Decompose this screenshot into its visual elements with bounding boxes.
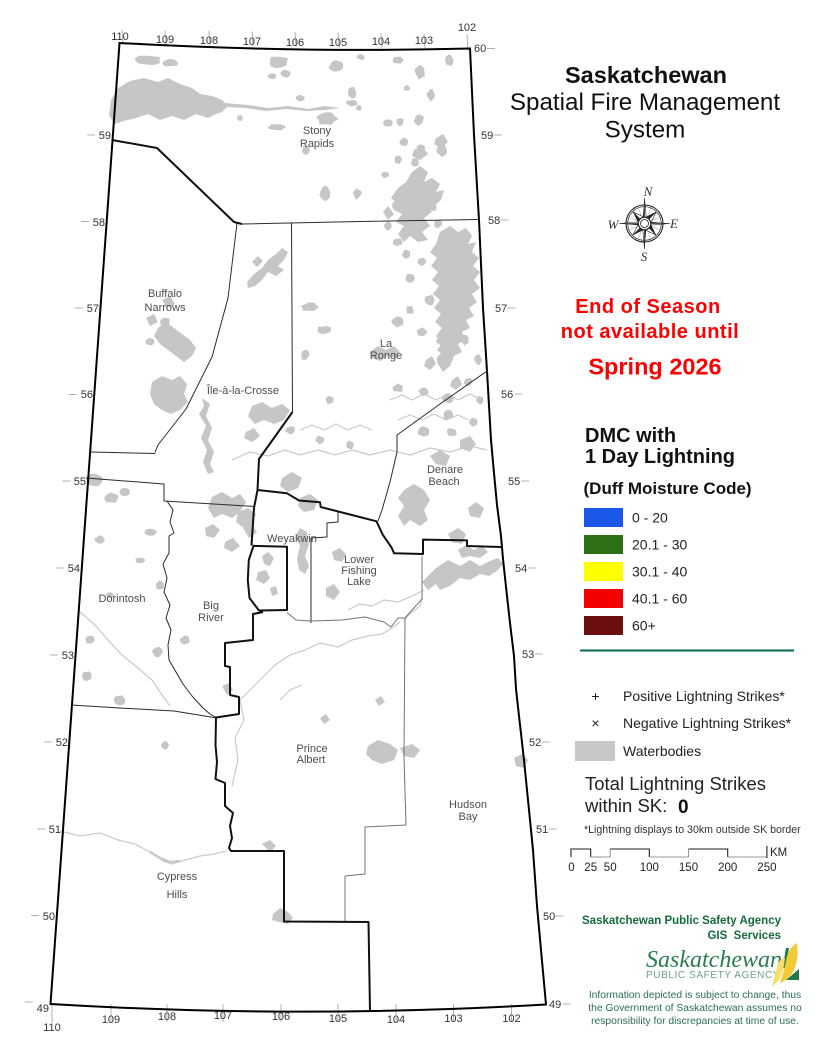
- svg-text:0 - 20: 0 - 20: [632, 510, 668, 526]
- svg-text:55: 55: [508, 476, 520, 488]
- svg-text:108: 108: [200, 35, 218, 47]
- svg-text:53: 53: [522, 649, 534, 661]
- svg-text:30.1 - 40: 30.1 - 40: [632, 564, 687, 580]
- svg-text:51: 51: [49, 824, 61, 836]
- svg-text:110: 110: [43, 1022, 61, 1034]
- svg-text:51: 51: [536, 824, 548, 836]
- svg-text:107: 107: [214, 1010, 232, 1022]
- svg-text:59: 59: [99, 130, 111, 142]
- svg-text:not available until: not available until: [561, 321, 739, 343]
- svg-text:×: ×: [591, 715, 599, 731]
- svg-text:59: 59: [481, 130, 493, 142]
- svg-text:60+: 60+: [632, 618, 656, 634]
- svg-text:Waterbodies: Waterbodies: [623, 743, 701, 759]
- svg-text:Information depicted is subjec: Information depicted is subject to chang…: [589, 990, 801, 1001]
- svg-text:Beach: Beach: [428, 476, 459, 488]
- svg-text:Stony: Stony: [303, 125, 332, 137]
- svg-text:(Duff Moisture Code): (Duff Moisture Code): [584, 479, 752, 498]
- svg-text:Hudson: Hudson: [449, 799, 487, 811]
- svg-text:1 Day Lightning: 1 Day Lightning: [585, 446, 735, 468]
- svg-text:50: 50: [543, 911, 555, 923]
- svg-text:56: 56: [501, 389, 513, 401]
- svg-text:Positive Lightning Strikes*: Positive Lightning Strikes*: [623, 688, 785, 704]
- svg-text:+: +: [591, 688, 599, 704]
- svg-text:Saskatchewan Public Safety Age: Saskatchewan Public Safety Agency: [582, 915, 782, 927]
- svg-text:DMC with: DMC with: [585, 425, 676, 447]
- svg-text:Narrows: Narrows: [145, 302, 186, 314]
- svg-text:La: La: [380, 338, 393, 350]
- svg-text:54: 54: [68, 563, 80, 575]
- svg-text:105: 105: [329, 1013, 347, 1025]
- svg-text:S: S: [641, 249, 648, 264]
- svg-text:57: 57: [87, 303, 99, 315]
- svg-text:107: 107: [243, 36, 261, 48]
- svg-text:Ronge: Ronge: [370, 350, 402, 362]
- svg-text:50: 50: [604, 862, 617, 874]
- svg-text:54: 54: [515, 563, 527, 575]
- svg-text:*Lightning displays to 30km ou: *Lightning displays to 30km outside SK b…: [584, 824, 801, 836]
- svg-text:150: 150: [679, 862, 698, 874]
- svg-text:Spring 2026: Spring 2026: [588, 354, 721, 380]
- svg-text:Spatial Fire Management: Spatial Fire Management: [510, 89, 781, 116]
- svg-text:103: 103: [444, 1013, 462, 1025]
- svg-text:20.1 - 30: 20.1 - 30: [632, 537, 687, 553]
- svg-text:49: 49: [37, 1003, 49, 1015]
- svg-text:Lake: Lake: [347, 576, 371, 588]
- svg-text:Rapids: Rapids: [300, 138, 335, 150]
- svg-text:200: 200: [718, 862, 737, 874]
- svg-text:N: N: [643, 184, 654, 199]
- svg-text:102: 102: [458, 22, 476, 34]
- svg-text:PUBLIC SAFETY AGENCY: PUBLIC SAFETY AGENCY: [646, 970, 780, 981]
- svg-text:40.1 - 60: 40.1 - 60: [632, 591, 687, 607]
- svg-text:within SK:: within SK:: [584, 795, 667, 816]
- svg-text:102: 102: [502, 1013, 520, 1025]
- svg-text:25: 25: [584, 862, 597, 874]
- svg-text:49: 49: [549, 999, 561, 1011]
- svg-text:Weyakwin: Weyakwin: [267, 533, 317, 545]
- svg-text:0: 0: [568, 862, 574, 874]
- svg-text:106: 106: [286, 37, 304, 49]
- svg-text:Île-à-la-Crosse: Île-à-la-Crosse: [206, 384, 279, 397]
- svg-text:Bay: Bay: [459, 811, 478, 823]
- svg-text:57: 57: [495, 303, 507, 315]
- svg-text:E: E: [669, 216, 678, 231]
- svg-text:0: 0: [678, 797, 689, 818]
- svg-text:105: 105: [329, 37, 347, 49]
- svg-text:KM: KM: [770, 847, 787, 859]
- svg-text:109: 109: [156, 34, 174, 46]
- svg-text:60: 60: [474, 43, 486, 55]
- svg-text:58: 58: [93, 217, 105, 229]
- svg-text:the Government of Saskatchewan: the Government of Saskatchewan assumes n…: [588, 1003, 802, 1014]
- svg-text:108: 108: [158, 1011, 176, 1023]
- svg-text:50: 50: [43, 911, 55, 923]
- svg-text:104: 104: [387, 1014, 405, 1026]
- svg-text:Denare: Denare: [427, 464, 463, 476]
- svg-text:56: 56: [81, 389, 93, 401]
- svg-text:River: River: [198, 612, 224, 624]
- svg-text:52: 52: [529, 737, 541, 749]
- svg-text:System: System: [605, 117, 686, 144]
- svg-text:100: 100: [640, 862, 659, 874]
- svg-text:250: 250: [757, 862, 776, 874]
- svg-text:106: 106: [272, 1011, 290, 1023]
- svg-text:109: 109: [102, 1014, 120, 1026]
- svg-text:Total Lightning Strikes: Total Lightning Strikes: [585, 773, 766, 794]
- svg-text:55: 55: [74, 476, 86, 488]
- svg-text:52: 52: [56, 737, 68, 749]
- svg-text:Albert: Albert: [297, 754, 326, 766]
- svg-text:53: 53: [62, 650, 74, 662]
- svg-text:58: 58: [488, 215, 500, 227]
- svg-text:responsibility for discrepanci: responsibility for discrepancies at time…: [591, 1016, 799, 1027]
- svg-text:GIS Services: GIS Services: [707, 930, 781, 942]
- svg-text:W: W: [608, 217, 620, 232]
- svg-text:Saskatchewan: Saskatchewan: [565, 62, 727, 88]
- svg-text:Big: Big: [203, 600, 219, 612]
- svg-text:End of Season: End of Season: [575, 296, 720, 318]
- svg-text:110: 110: [111, 31, 129, 43]
- svg-text:Dorintosh: Dorintosh: [98, 593, 145, 605]
- svg-text:104: 104: [372, 36, 390, 48]
- svg-text:Negative Lightning Strikes*: Negative Lightning Strikes*: [623, 715, 792, 731]
- svg-text:Buffalo: Buffalo: [148, 288, 182, 300]
- svg-text:Cypress: Cypress: [157, 871, 198, 883]
- svg-text:103: 103: [415, 35, 433, 47]
- svg-text:Hills: Hills: [167, 889, 188, 901]
